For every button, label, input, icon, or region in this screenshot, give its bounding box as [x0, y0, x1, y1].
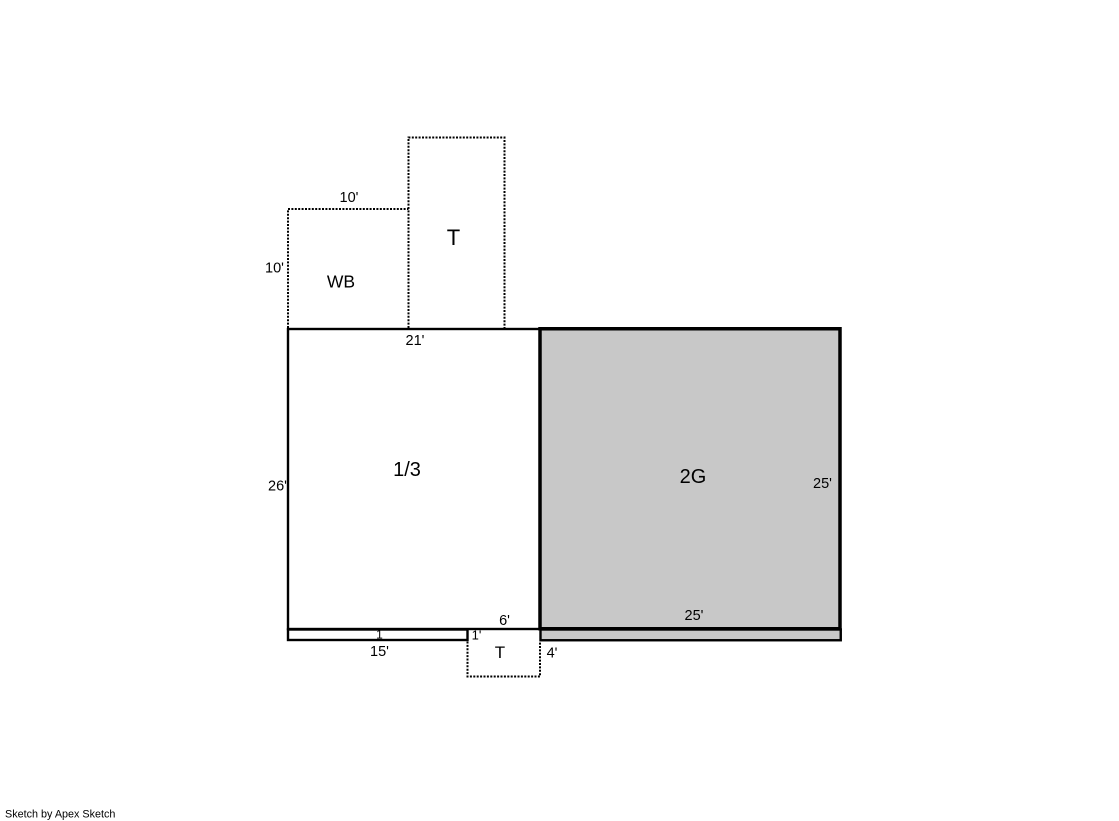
svg-text:10': 10'	[340, 190, 359, 206]
svg-text:25': 25'	[685, 608, 704, 624]
svg-text:T: T	[495, 643, 505, 662]
svg-text:6': 6'	[499, 613, 510, 629]
svg-text:Sketch by Apex Sketch: Sketch by Apex Sketch	[5, 809, 115, 821]
svg-text:4': 4'	[547, 646, 558, 662]
svg-text:21': 21'	[406, 333, 425, 349]
svg-text:1/3: 1/3	[393, 459, 421, 481]
svg-text:10': 10'	[265, 261, 284, 277]
svg-text:25': 25'	[813, 476, 832, 492]
svg-text:15': 15'	[370, 644, 389, 660]
svg-text:1: 1	[376, 628, 383, 642]
svg-text:T: T	[447, 225, 460, 250]
svg-text:26': 26'	[268, 479, 287, 495]
svg-text:WB: WB	[327, 272, 355, 292]
svg-text:1': 1'	[472, 628, 482, 643]
svg-text:2G: 2G	[680, 466, 707, 488]
